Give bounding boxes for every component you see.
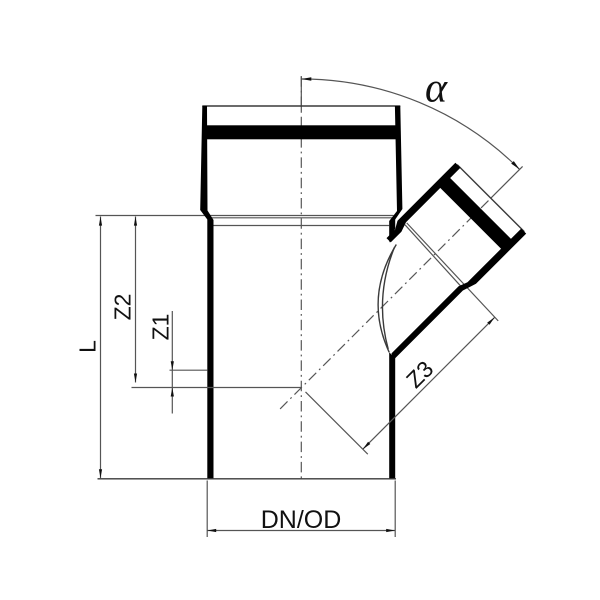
svg-text:Z1: Z1 xyxy=(147,314,173,341)
svg-text:Z2: Z2 xyxy=(109,294,135,321)
svg-text:L: L xyxy=(74,340,100,353)
svg-text:DN/OD: DN/OD xyxy=(261,506,342,534)
svg-text:α: α xyxy=(425,66,448,112)
